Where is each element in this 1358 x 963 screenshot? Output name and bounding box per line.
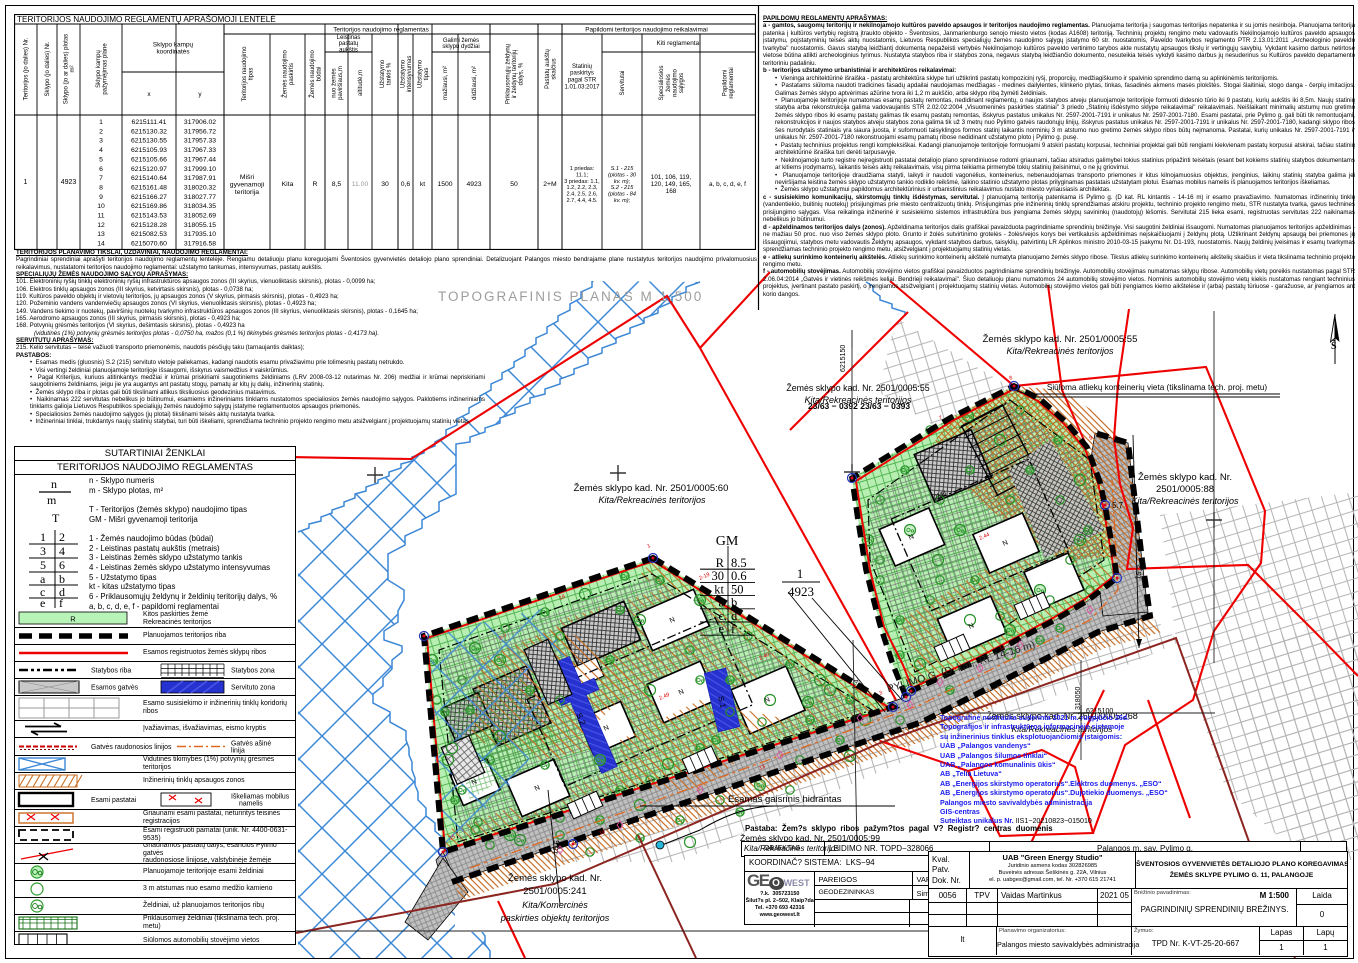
svg-text:koordinatės: koordinatės: [156, 49, 189, 56]
svg-text:Sklypo (jo ar dalies) plotas: Sklypo (jo ar dalies) plotas: [63, 34, 69, 104]
svg-text:6215130.55: 6215130.55: [131, 138, 167, 145]
svg-text:6215105.66: 6215105.66: [131, 156, 167, 163]
svg-text:a: a: [40, 572, 46, 586]
svg-text:1: 1: [646, 543, 651, 550]
svg-text:11.1;: 11.1;: [576, 172, 588, 178]
svg-text:6215143.53: 6215143.53: [131, 213, 167, 220]
svg-text:1: 1: [40, 530, 46, 544]
svg-text:1: 1: [99, 119, 103, 126]
svg-text:318055.15: 318055.15: [184, 222, 216, 229]
svg-text:c: c: [718, 609, 724, 623]
svg-text:tankis %: tankis %: [386, 62, 392, 85]
svg-text:Kita/Rekreacinės teritorijos: Kita/Rekreacinės teritorijos: [1006, 346, 1114, 356]
svg-text:317956.72: 317956.72: [184, 128, 216, 135]
svg-text:reglamentai: reglamentai: [729, 67, 735, 98]
svg-text:Gatvės ašinė: Gatvės ašinė: [231, 741, 271, 748]
svg-text:Papildomi: Papildomi: [722, 70, 728, 96]
svg-text:Gatvės raudonosios linijos: Gatvės raudonosios linijos: [91, 744, 172, 751]
svg-text:paskirties objektų teritorijos: paskirties objektų teritorijos: [500, 913, 610, 923]
svg-text:8: 8: [99, 184, 103, 191]
svg-text:3 priedas: 1.1,: 3 priedas: 1.1,: [564, 179, 600, 185]
svg-text:Esamas gaisrinis hidrantas: Esamas gaisrinis hidrantas: [728, 794, 842, 805]
svg-text:Kita/Rekreacinės teritorijos: Kita/Rekreacinės teritorijos: [1131, 496, 1239, 506]
svg-text:317967.33: 317967.33: [184, 147, 216, 154]
svg-text:8.5: 8.5: [731, 556, 747, 570]
svg-text:teritorija: teritorija: [235, 189, 259, 196]
svg-text:R: R: [716, 556, 725, 570]
svg-text:Kita: Kita: [282, 181, 294, 188]
svg-text:sąlygos: sąlygos: [679, 73, 685, 93]
svg-text:tipas: tipas: [424, 68, 430, 81]
svg-text:6215150: 6215150: [840, 345, 847, 372]
svg-text:Š: Š: [1331, 339, 1337, 352]
svg-text:Užstatymo: Užstatymo: [380, 59, 386, 88]
svg-text:Žemės naudojimo: Žemės naudojimo: [308, 49, 316, 97]
svg-text:Sklypo kampų: Sklypo kampų: [96, 49, 102, 87]
svg-text:Esami pastatai: Esami pastatai: [91, 797, 137, 804]
svg-text:1 priedas:: 1 priedas:: [570, 166, 595, 172]
svg-text:pastatų: pastatų: [339, 41, 359, 47]
svg-text:m²: m²: [70, 66, 76, 73]
svg-text:2501/0005:88: 2501/0005:88: [1156, 484, 1214, 495]
svg-text:namelis: namelis: [239, 801, 263, 808]
svg-text:0,6: 0,6: [401, 181, 411, 188]
svg-text:9: 9: [99, 194, 103, 201]
svg-text:Žemės naudojimo: Žemės naudojimo: [280, 49, 288, 97]
svg-text:Leistinas: Leistinas: [337, 35, 361, 41]
svg-text:50: 50: [510, 181, 518, 188]
svg-text:168: 168: [666, 188, 677, 195]
svg-text:Užstatymo: Užstatymo: [400, 59, 406, 88]
svg-text:intensyvumas: intensyvumas: [407, 56, 413, 93]
svg-text:būdai: būdai: [316, 67, 322, 82]
svg-text:Servitutai: Servitutai: [620, 70, 626, 95]
svg-text:318052.69: 318052.69: [184, 213, 216, 220]
svg-text:6215140.64: 6215140.64: [131, 175, 167, 182]
svg-text:Statybos zona: Statybos zona: [231, 668, 275, 675]
svg-text:Kita/Rekreacinės teritorijos: Kita/Rekreacinės teritorijos: [598, 495, 706, 505]
svg-text:13: 13: [97, 231, 105, 238]
svg-text:sklypų dydžiai: sklypų dydžiai: [442, 44, 479, 50]
svg-text:Kita/Komercinės: Kita/Komercinės: [522, 900, 588, 910]
svg-text:4923: 4923: [466, 181, 481, 188]
svg-text:pagal STR: pagal STR: [568, 78, 597, 84]
svg-text:GM: GM: [716, 534, 739, 549]
svg-text:Žemės sklypo kad. Nr. 2501/000: Žemės sklypo kad. Nr. 2501/0005:55: [983, 334, 1138, 345]
svg-text:kv. m);: kv. m);: [614, 198, 631, 204]
svg-text:y: y: [198, 91, 202, 98]
svg-text:naudojimo: naudojimo: [672, 68, 678, 96]
svg-text:skaičius: skaičius: [551, 58, 557, 79]
svg-text:4923: 4923: [788, 584, 814, 599]
svg-text:318034.35: 318034.35: [184, 203, 216, 210]
svg-text:2-19: 2-19: [698, 572, 711, 582]
svg-text:1: 1: [797, 566, 804, 581]
svg-text:Teritorijos naudojimo: Teritorijos naudojimo: [242, 46, 248, 102]
svg-text:kt: kt: [420, 181, 425, 188]
svg-text:7: 7: [99, 175, 103, 182]
svg-text:a: a: [718, 596, 724, 610]
svg-text:6215169.86: 6215169.86: [131, 203, 167, 210]
svg-text:žemės: žemės: [666, 74, 672, 92]
svg-text:Statybos riba: Statybos riba: [91, 668, 131, 675]
svg-text:Esamos gatvės: Esamos gatvės: [91, 685, 139, 692]
svg-text:aukštis: aukštis: [339, 47, 358, 53]
svg-text:1500: 1500: [437, 181, 452, 188]
svg-text:317967.44: 317967.44: [184, 156, 216, 163]
svg-text:b: b: [731, 596, 737, 610]
svg-text:12: 12: [97, 222, 105, 229]
svg-text:120, 149, 165,: 120, 149, 165,: [651, 181, 692, 188]
svg-text:6215111.41: 6215111.41: [132, 119, 167, 126]
svg-text:gyvenamoji: gyvenamoji: [230, 181, 265, 188]
svg-text:Sklypo (jo dalies) Nr.: Sklypo (jo dalies) Nr.: [45, 41, 51, 96]
svg-text:101, 106, 119,: 101, 106, 119,: [651, 174, 692, 181]
svg-text:paskirtys: paskirtys: [570, 71, 594, 77]
svg-text:altitudė,m: altitudė,m: [358, 70, 364, 96]
svg-text:4: 4: [59, 544, 65, 558]
svg-text:x: x: [147, 91, 151, 98]
svg-text:317999.10: 317999.10: [184, 166, 216, 173]
svg-text:5.7: 5.7: [1112, 501, 1124, 510]
svg-text:Žemės sklypo kad. Nr. 2501/000: Žemės sklypo kad. Nr. 2501/0005:60: [574, 483, 729, 494]
svg-text:mažiausi, m²: mažiausi, m²: [443, 66, 449, 100]
svg-text:6215082.53: 6215082.53: [131, 231, 167, 238]
svg-text:3: 3: [40, 544, 46, 558]
svg-text:2: 2: [99, 128, 103, 135]
svg-text:Žemės sklypo kad. Nr.: Žemės sklypo kad. Nr.: [508, 873, 602, 884]
svg-text:Žemės sklypo kad. Nr.: Žemės sklypo kad. Nr.: [1138, 472, 1232, 483]
svg-text:n: n: [51, 477, 57, 491]
svg-text:(plotas - 30: (plotas - 30: [608, 172, 637, 178]
svg-text:ir želdynų teritorijų: ir želdynų teritorijų: [512, 49, 518, 98]
svg-text:6: 6: [99, 166, 103, 173]
svg-text:2.7, 4.4, 4.5.: 2.7, 4.4, 4.5.: [566, 198, 598, 204]
svg-text:6: 6: [59, 558, 65, 572]
svg-text:317906.02: 317906.02: [184, 119, 216, 126]
svg-text:50: 50: [731, 582, 744, 596]
svg-text:30: 30: [712, 569, 725, 583]
svg-text:TERITORIJOS NAUDOJIMO REGLAMEN: TERITORIJOS NAUDOJIMO REGLAMENTŲ APRAŠOM…: [17, 14, 276, 24]
svg-text:Iškeliamas mobilus: Iškeliamas mobilus: [231, 794, 290, 801]
svg-text:318020.32: 318020.32: [184, 184, 216, 191]
svg-text:Priklausomųjų želdynų: Priklausomųjų želdynų: [506, 43, 512, 104]
svg-text:2501/0005:241: 2501/0005:241: [523, 886, 586, 897]
svg-text:4: 4: [99, 147, 103, 154]
svg-text:a, b, c, d, e, f: a, b, c, d, e, f: [709, 181, 746, 188]
svg-text:317916.58: 317916.58: [184, 241, 216, 248]
svg-text:T: T: [52, 511, 60, 525]
svg-text:2.4, 2.5, 2.6,: 2.4, 2.5, 2.6,: [566, 192, 598, 198]
svg-text:1: 1: [24, 179, 28, 186]
svg-text:Pastatų aukštų: Pastatų aukštų: [545, 48, 551, 88]
svg-text:14: 14: [97, 241, 105, 248]
svg-text:dalys, %: dalys, %: [519, 62, 525, 85]
svg-text:10: 10: [97, 203, 105, 210]
svg-text:317957.33: 317957.33: [184, 138, 216, 145]
svg-text:1.4: 1.4: [850, 679, 861, 691]
svg-text:30: 30: [381, 181, 389, 188]
svg-text:Užstatymo: Užstatymo: [417, 59, 423, 88]
svg-text:6215070.60: 6215070.60: [131, 241, 167, 248]
svg-text:4923: 4923: [61, 179, 77, 186]
svg-text:11.00: 11.00: [352, 181, 369, 188]
svg-text:6215128.28: 6215128.28: [131, 222, 167, 229]
svg-text:317935.10: 317935.10: [184, 231, 216, 238]
svg-text:6215120.97: 6215120.97: [131, 166, 167, 173]
svg-text:Specialiosios: Specialiosios: [659, 65, 665, 100]
svg-text:5: 5: [40, 558, 46, 572]
svg-text:pažymėjimas plane: pažymėjimas plane: [102, 43, 108, 95]
svg-text:0.6: 0.6: [731, 569, 747, 583]
svg-text:m: m: [47, 493, 57, 507]
svg-text:R: R: [70, 615, 76, 624]
svg-text:1.01.03:2017: 1.01.03:2017: [564, 84, 600, 90]
svg-text:paskirtis: paskirtis: [289, 63, 295, 85]
svg-text:11: 11: [97, 213, 104, 220]
svg-text:6215166.27: 6215166.27: [131, 194, 167, 201]
svg-text:6215105.93: 6215105.93: [131, 147, 167, 154]
svg-text:6215161.48: 6215161.48: [131, 184, 167, 191]
svg-text:d: d: [731, 609, 738, 623]
svg-text:2+M: 2+M: [543, 181, 557, 188]
svg-text:nuo žemės: nuo žemės: [331, 68, 337, 97]
svg-text:Teritorijos naudojimo reglamen: Teritorijos naudojimo reglamentas: [333, 27, 429, 34]
svg-text:b: b: [59, 572, 65, 586]
svg-text:8,5: 8,5: [332, 181, 342, 188]
svg-text:kt: kt: [714, 582, 724, 596]
svg-text:318027.77: 318027.77: [184, 194, 216, 201]
svg-text:R: R: [313, 181, 318, 188]
svg-text:e: e: [718, 622, 724, 636]
svg-text:Kiti reglamentai: Kiti reglamentai: [656, 40, 700, 47]
svg-text:(plotas - 84: (plotas - 84: [608, 192, 636, 198]
svg-text:Statinių: Statinių: [572, 64, 593, 70]
svg-text:6215130.32: 6215130.32: [131, 128, 167, 135]
svg-text:Servituto zona: Servituto zona: [231, 685, 275, 692]
svg-text:Siūloma atliekų konteinerių vi: Siūloma atliekų konteinerių vieta (tiksl…: [1047, 383, 1268, 392]
svg-text:Sklypo kampų: Sklypo kampų: [153, 42, 194, 49]
svg-text:23/63 − 0392 23/63 − 0393: 23/63 − 0392 23/63 − 0393: [808, 401, 910, 411]
svg-text:Žemės sklypo kad. Nr. 2501/000: Žemės sklypo kad. Nr. 2501/0005:55: [786, 383, 929, 393]
svg-text:paviršiaus,m: paviršiaus,m: [338, 66, 344, 100]
svg-text:linija: linija: [231, 748, 245, 755]
svg-text:S.2 - 215: S.2 - 215: [611, 185, 635, 191]
svg-text:Papildomi teritorijos naudojim: Papildomi teritorijos naudojimo reikalav…: [585, 27, 708, 34]
svg-text:kv. m);: kv. m);: [614, 179, 631, 185]
svg-text:Mišri: Mišri: [240, 174, 255, 181]
svg-text:Galimi žemės: Galimi žemės: [443, 38, 479, 44]
svg-text:2: 2: [59, 530, 65, 544]
svg-text:didžiausi, m²: didžiausi, m²: [472, 66, 478, 100]
svg-text:S.1 - 215: S.1 - 215: [611, 166, 635, 172]
svg-text:318050: 318050: [1075, 687, 1082, 710]
svg-text:tipas: tipas: [248, 68, 254, 81]
svg-text:1.2, 2.2, 2.3,: 1.2, 2.2, 2.3,: [566, 185, 598, 191]
svg-text:Teritorijos (jo dalies) Nr.: Teritorijos (jo dalies) Nr.: [24, 37, 30, 100]
svg-text:3: 3: [99, 138, 103, 145]
svg-text:317987.91: 317987.91: [184, 175, 216, 182]
svg-text:5: 5: [99, 156, 103, 163]
